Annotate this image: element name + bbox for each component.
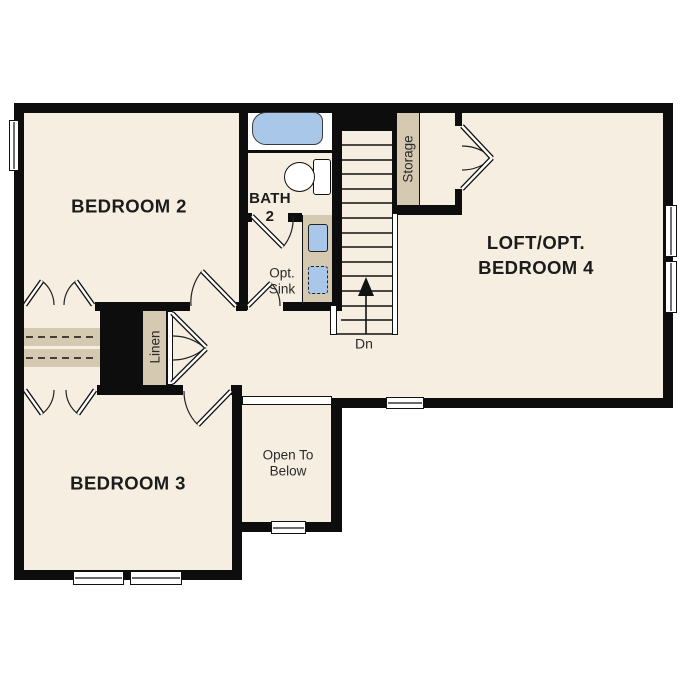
- wall-hall-top-b: [236, 302, 247, 311]
- label-open-below-line2: Below: [263, 463, 314, 479]
- wall-bath-stairs: [332, 103, 342, 305]
- opening-loft-bottom: [386, 397, 424, 409]
- label-opt-sink-line2: Sink: [269, 281, 295, 297]
- closet-shelf-bedroom3: [24, 349, 100, 367]
- wall-storage-south: [392, 205, 462, 215]
- optional-sink: [308, 266, 328, 294]
- toilet-bowl: [284, 162, 315, 192]
- floor-plan: BEDROOM 2 BATH 2 Opt. Sink Linen Storage…: [0, 0, 687, 687]
- label-bedroom2: BEDROOM 2: [71, 194, 187, 219]
- window-loft-right-1: [665, 205, 677, 257]
- wall-loft-bottom: [331, 398, 673, 408]
- sink: [308, 224, 328, 252]
- window-bedroom3-1: [73, 571, 124, 585]
- linen-door-opening: [167, 311, 173, 385]
- open-below-railing: [242, 396, 332, 405]
- wall-exterior-left: [14, 103, 24, 580]
- wall-bedroom3-top-b: [231, 385, 242, 395]
- window-bedroom3-2: [130, 571, 182, 585]
- label-bath2-line2: 2: [249, 208, 291, 226]
- label-bedroom3: BEDROOM 3: [70, 471, 186, 496]
- label-stairs-down: Dn: [355, 336, 373, 352]
- wall-bedroom3-right: [232, 385, 242, 580]
- window-loft-right-2: [665, 261, 677, 313]
- wall-bedroom3-bottom: [14, 570, 242, 580]
- toilet-tank: [313, 159, 331, 195]
- label-bath2-line1: BATH: [249, 190, 291, 208]
- wall-openbelow-right: [331, 398, 342, 532]
- label-loft-line1: LOFT/OPT.: [478, 230, 594, 255]
- label-opt-sink-line1: Opt.: [269, 266, 295, 282]
- wall-bedroom2-bath: [239, 103, 248, 310]
- tub-deck-edge: [247, 150, 332, 153]
- wall-exterior-top: [14, 103, 673, 113]
- stairs-landing-block: [338, 113, 397, 131]
- wall-stairs-storage: [392, 113, 397, 213]
- wall-storage-east-a: [455, 113, 462, 126]
- label-loft: LOFT/OPT. BEDROOM 4: [478, 230, 594, 280]
- label-bath2: BATH 2: [249, 190, 291, 226]
- label-loft-line2: BEDROOM 4: [478, 255, 594, 280]
- closet-shelf-bedroom2: [24, 328, 100, 346]
- label-linen: Linen: [147, 330, 163, 363]
- label-open-below: Open To Below: [263, 448, 314, 479]
- stairs-railing-left: [330, 305, 337, 335]
- stairs-railing-right: [392, 213, 398, 335]
- bathtub: [252, 112, 323, 145]
- label-opt-sink: Opt. Sink: [269, 266, 295, 297]
- label-storage: Storage: [400, 135, 416, 182]
- label-open-below-line1: Open To: [263, 448, 314, 464]
- opening-open-below-bottom: [271, 521, 306, 534]
- window-bedroom2-left: [9, 120, 19, 171]
- wall-closet-core: [100, 302, 143, 395]
